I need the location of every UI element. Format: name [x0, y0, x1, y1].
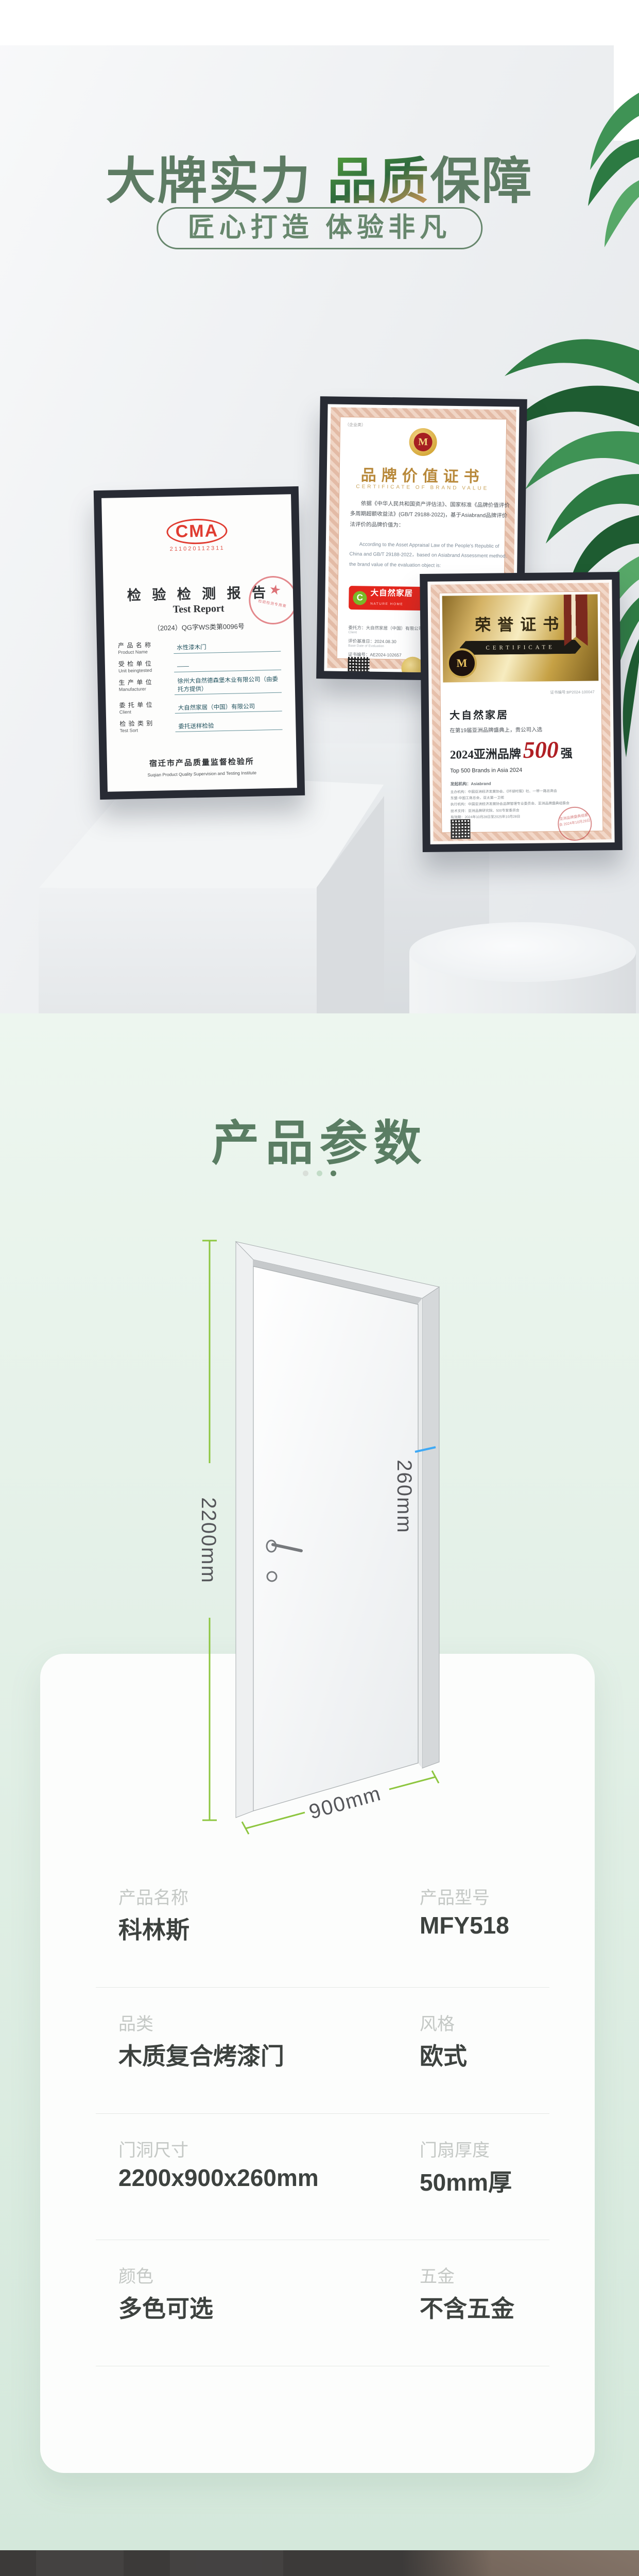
- hero-subtitle-pill: 匠心打造 体验非凡: [157, 207, 482, 249]
- test-report-field: 产 品 名 称Product Name 水性漆木门: [118, 638, 281, 655]
- honor-award: 2024亚洲品牌 500 强: [450, 738, 573, 762]
- qr-code-icon: [348, 657, 370, 674]
- door-height-label: 2200mm: [197, 1497, 220, 1584]
- pedestal-cube-front: [39, 888, 317, 1013]
- institute-name-en: Suqian Product Quality Supervision and T…: [107, 769, 297, 778]
- cma-mark: CMA: [166, 518, 227, 545]
- spec-label: 品类: [118, 2010, 153, 2035]
- honor-brand: 大自然家居: [450, 706, 509, 722]
- hero-title-part1: 大牌实力: [106, 153, 327, 209]
- honor-cert-number: 证书编号:BP2024-100047: [550, 689, 594, 696]
- spec-value: 不含五金: [420, 2290, 514, 2324]
- test-report-field: 委 托 单 位Client 大自然家居（中国）有限公司: [119, 698, 282, 715]
- spec-value: 木质复合烤漆门: [118, 2038, 284, 2072]
- honor-banner: CERTIFICATE: [460, 640, 581, 655]
- honor-issuer: 发起机构：Asiabrand: [450, 781, 491, 787]
- brand-value-paragraph-cn: 依据《中华人民共和国资产评估法》、国家标准《品牌价值评价 多周期超额收益法》(G…: [350, 498, 511, 532]
- dots-decoration: [0, 1170, 639, 1179]
- certificate-test-report-paper: CMA 211020112311 检 验 检 测 报 告 Test Report…: [101, 494, 297, 792]
- spec-value: MFY518: [420, 1911, 509, 1939]
- brand-value-paragraph-en: According to the Asset Appraisal Law of …: [349, 539, 510, 572]
- nature-home-dot-icon: C: [353, 591, 367, 605]
- spec-value: 2200x900x260mm: [118, 2164, 319, 2192]
- test-report-fields: 产 品 名 称Product Name 水性漆木门 受 检 单 位Unit be…: [118, 638, 283, 738]
- test-report-field: 检 验 类 别Test Sort 委托送样检验: [119, 716, 282, 734]
- agent-illustration: [464, 2566, 634, 2576]
- ribbon-icon: [564, 595, 588, 646]
- medal-icon: M: [447, 648, 477, 679]
- top-white-strip: [0, 0, 639, 45]
- promo-page: 大牌实力 品质保障 匠心打造 体验非凡 CMA 211020112311 检 验…: [0, 0, 639, 2576]
- spec-label: 产品名称: [118, 1884, 188, 1909]
- spec-value: 多色可选: [118, 2290, 213, 2324]
- certificate-honor: 荣誉证书 CERTIFICATE M 证书编号:BP2024-100047 大自…: [420, 572, 623, 852]
- nature-home-logo: C 大自然家居NATURE HOME: [349, 586, 425, 611]
- cma-number: 211020112311: [102, 544, 292, 554]
- cma-logo: CMA 211020112311: [102, 517, 292, 554]
- spec-value: 科林斯: [118, 1911, 189, 1945]
- test-report-field: 受 检 单 位Unit beingtested ——: [118, 656, 281, 674]
- spec-label: 风格: [420, 2010, 455, 2035]
- spec-table: 产品名称 科林斯 产品型号 MFY518 品类 木质复合烤漆门 风格 欧式 门洞…: [40, 1654, 595, 2473]
- honor-award-en: Top 500 Brands in Asia 2024: [450, 767, 522, 774]
- hero-title: 大牌实力 品质保障: [0, 140, 639, 213]
- test-report-field: 生 产 单 位Manufacturer 徐州大自然德森堡木业有限公司（由委托方提…: [118, 675, 282, 697]
- spec-label: 颜色: [118, 2262, 153, 2287]
- service-section: 金保姆服务 全国1000+实体门店支持 咨询下单 › 上门量尺 › 签订合同: [0, 2550, 639, 2576]
- certificate-test-report: CMA 211020112311 检 验 检 测 报 告 Test Report…: [94, 486, 305, 800]
- spec-label: 产品型号: [420, 1884, 490, 1909]
- hero-section: 大牌实力 品质保障 匠心打造 体验非凡 CMA 211020112311 检 验…: [0, 0, 639, 1013]
- spec-value: 50mm厚: [420, 2164, 512, 2198]
- customer-service-photo: [402, 2550, 639, 2576]
- spec-label: 门洞尺寸: [118, 2136, 188, 2161]
- hero-title-highlight: 品质: [327, 153, 430, 209]
- institute-name-cn: 宿迁市产品质量监督检验所: [107, 755, 297, 770]
- door-depth-label: 260mm: [393, 1460, 416, 1533]
- spec-label: 五金: [420, 2262, 455, 2287]
- hero-subtitle: 匠心打造 体验非凡: [188, 213, 451, 243]
- qr-code-icon: [451, 819, 470, 839]
- params-title: 产品参数: [0, 1104, 639, 1174]
- spec-value: 欧式: [420, 2038, 467, 2072]
- product-params-section: 产品参数: [0, 1013, 639, 2550]
- honor-line: 在第19届亚洲品牌盛典上，贵公司入选: [450, 726, 542, 735]
- hero-title-part2: 保障: [430, 153, 533, 209]
- spec-label: 门扇厚度: [420, 2136, 490, 2161]
- pedestal-cylinder-top: [409, 922, 636, 982]
- corner-note: （企业类）: [345, 422, 366, 428]
